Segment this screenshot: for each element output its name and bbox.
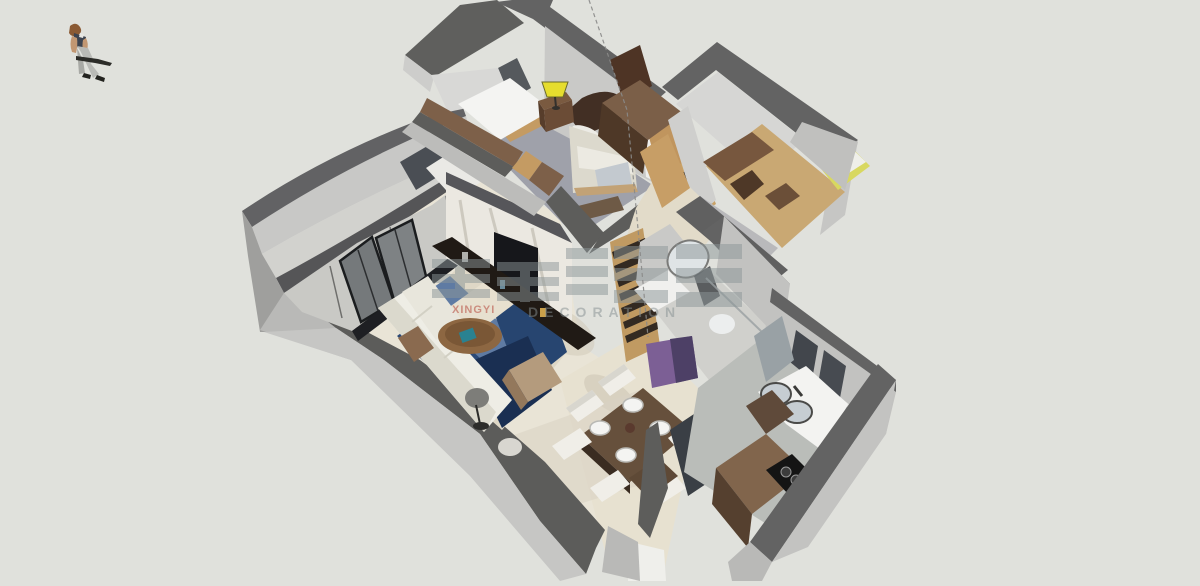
svg-text:DECORATION: DECORATION (528, 304, 681, 320)
svg-text:XINGYI: XINGYI (452, 304, 495, 316)
